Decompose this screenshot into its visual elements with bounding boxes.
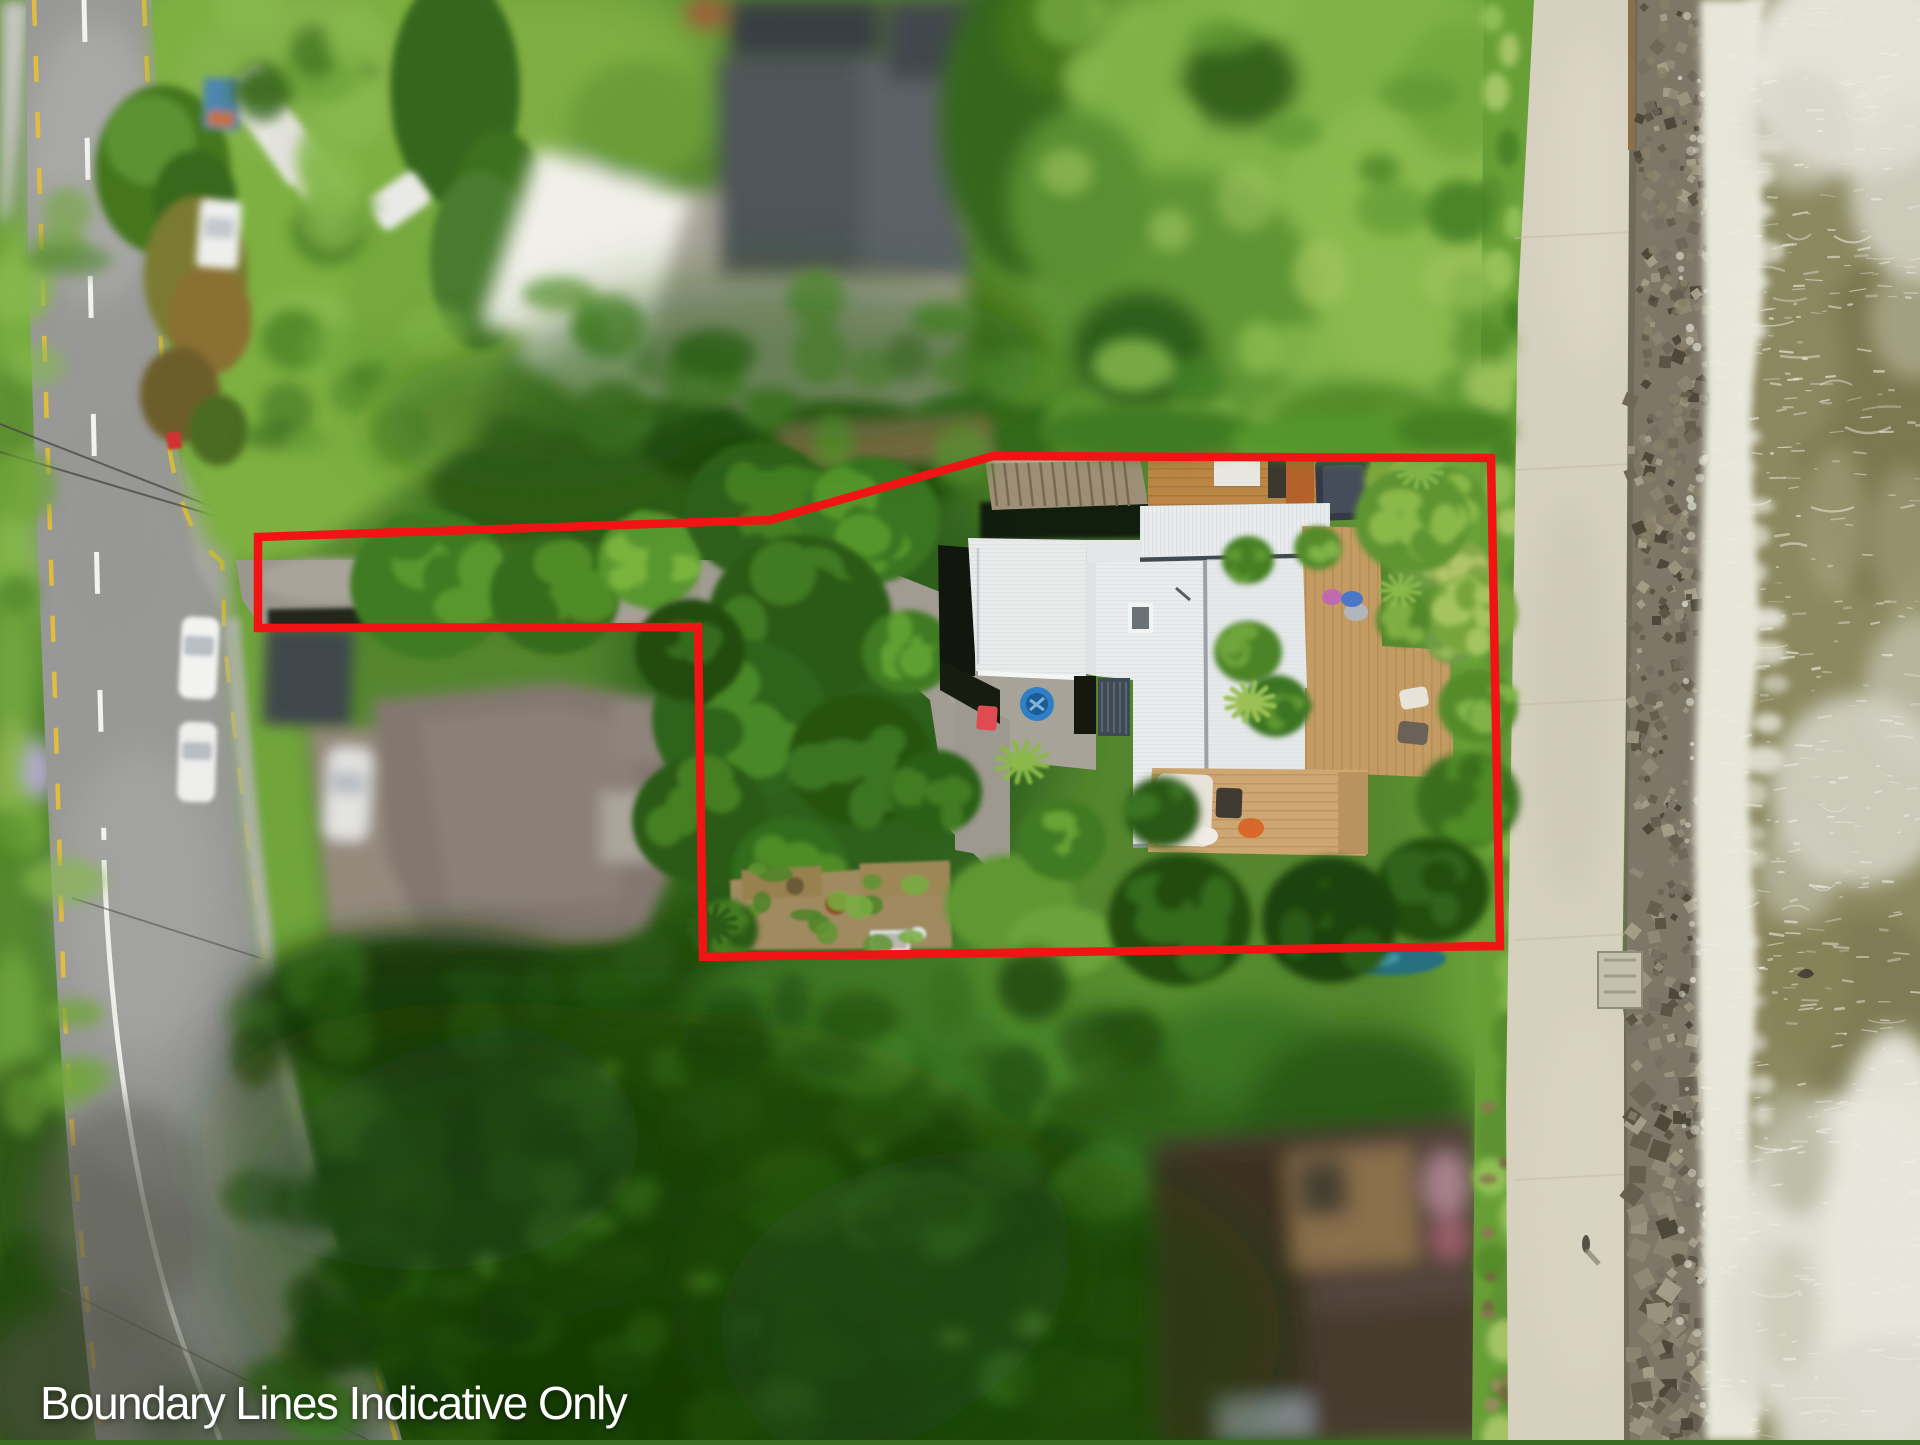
svg-text:Boundary Lines Indicative Only: Boundary Lines Indicative Only — [40, 1377, 628, 1429]
